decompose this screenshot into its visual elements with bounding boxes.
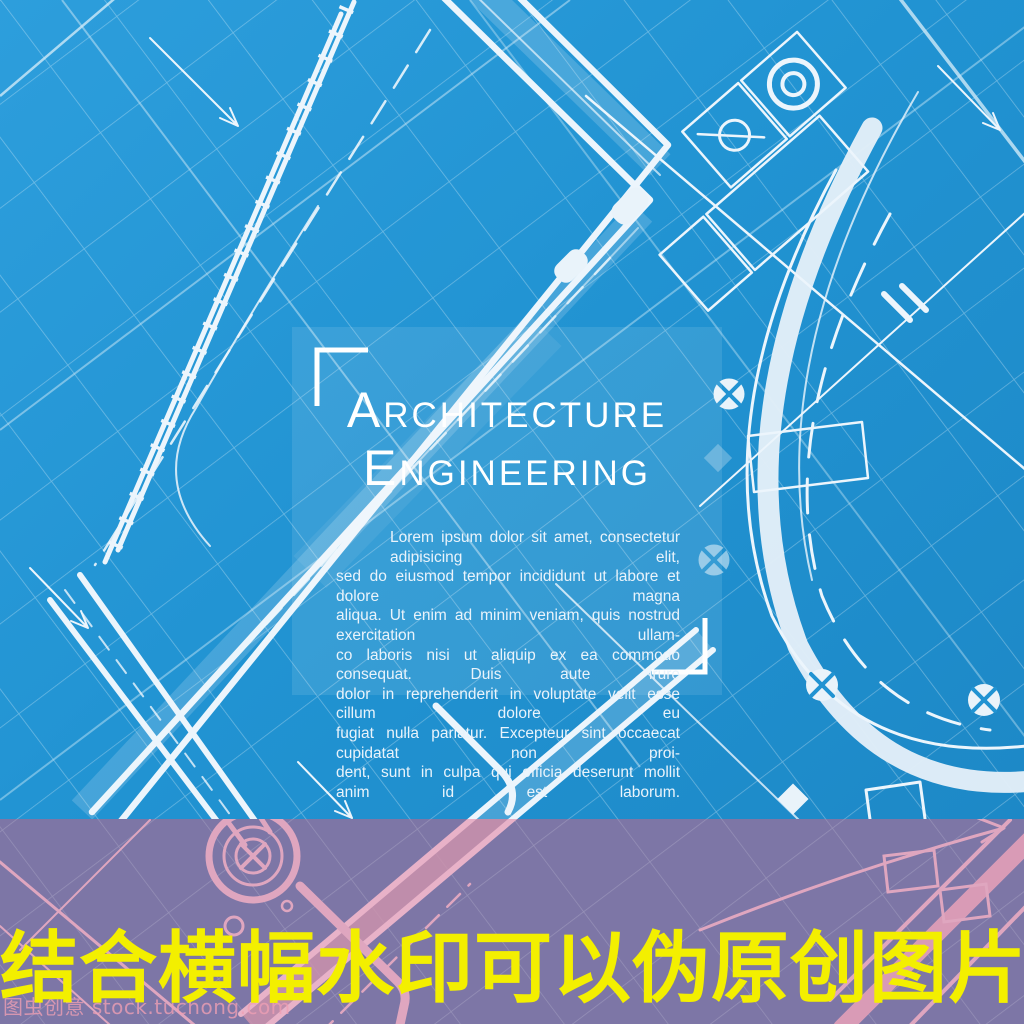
paragraph-line: co laboris nisi ut aliquip ex ea commodo… xyxy=(336,646,680,685)
paragraph-line: fugiat nulla pariatur. Excepteur sint oc… xyxy=(336,724,680,763)
panel-title-line1: Architecture xyxy=(292,384,722,436)
paragraph-line: Lorem ipsum dolor sit amet, consectetur … xyxy=(336,528,680,567)
banner-watermark-text: 结合横幅水印可以伪原创图片 xyxy=(0,920,1024,1018)
panel-paragraph: Lorem ipsum dolor sit amet, consectetur … xyxy=(336,528,680,802)
paragraph-line: aliqua. Ut enim ad minim veniam, quis no… xyxy=(336,606,680,645)
paragraph-line: dent, sunt in culpa qui officia deserunt… xyxy=(336,763,680,802)
paragraph-line: dolor in reprehenderit in voluptate veli… xyxy=(336,685,680,724)
paragraph-line: sed do eiusmod tempor incididunt ut labo… xyxy=(336,567,680,606)
panel-title-line2: Engineering xyxy=(292,442,722,494)
blueprint-artwork xyxy=(0,0,1024,1024)
blueprint-stock-image: Architecture Engineering Lorem ipsum dol… xyxy=(0,0,1024,1024)
